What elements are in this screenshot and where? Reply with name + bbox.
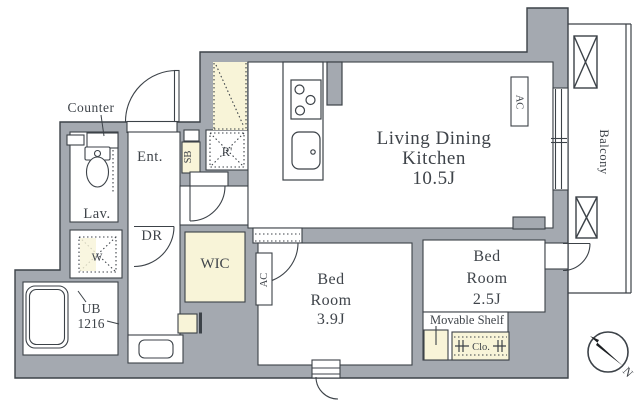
bottom-window-arc (316, 377, 338, 399)
bedroom39-label-1: Bed (317, 271, 344, 288)
kitchen-wall-stub (327, 62, 342, 105)
bedroom25-label-3: 2.5J (473, 291, 501, 308)
entry-door-arc (126, 71, 177, 122)
shoe-box-label: SB (183, 151, 194, 164)
wall-step-block (513, 217, 545, 229)
sink-icon (292, 132, 320, 169)
ldk-label-3: 10.5J (412, 168, 455, 189)
ldk-label-2: Kitchen (402, 148, 466, 169)
floor-plan: Counter Ent. SB R' Lav. W UB 1216 DR WIC… (0, 0, 640, 408)
washer-label: W (92, 252, 103, 264)
lavatory-label: Lav. (83, 206, 110, 222)
kitchen-door-opening (190, 172, 228, 186)
entry-door-leaf (175, 71, 180, 122)
ldk-label-1: Living Dining (377, 128, 492, 149)
counter-label: Counter (68, 100, 115, 115)
bedroom39-label-2: Room (310, 292, 351, 309)
compass-icon (588, 332, 628, 372)
wall-shelf-box (184, 130, 199, 141)
closet-label: Clo. (472, 342, 490, 353)
floor-plan-canvas: Counter Ent. SB R' Lav. W UB 1216 DR WIC… (0, 0, 640, 408)
toilet-bowl-icon (87, 157, 109, 187)
toilet-button-icon (95, 151, 101, 157)
dr-step-box (178, 314, 197, 333)
dr-label: DR (141, 228, 162, 244)
bedroom39-label-3: 3.9J (317, 311, 345, 328)
tall-storage (213, 62, 247, 130)
balcony-door-opening (545, 243, 568, 269)
wic-label: WIC (200, 256, 229, 272)
unit-bath-label-1: UB (82, 301, 101, 316)
bedroom25-label-1: Bed (473, 248, 500, 265)
burner-icon (296, 106, 305, 115)
bedroom25-label-2: Room (466, 270, 507, 287)
entrance-label: Ent. (137, 149, 163, 165)
faucet-icon (311, 150, 315, 154)
refrigerator-label: R' (222, 145, 233, 159)
entry-door-opening (127, 122, 177, 133)
pillar-icon (574, 36, 597, 88)
ac-bedroom-label: AC (259, 273, 270, 288)
burner-icon (295, 85, 304, 94)
bottom-window-opening (312, 360, 340, 378)
unit-bath-label-2: 1216 (78, 316, 105, 331)
counter-shelf (87, 133, 118, 148)
balcony-label: Balcony (597, 129, 611, 174)
pillar-icon (576, 197, 597, 238)
bathtub-inner-icon (30, 290, 65, 345)
ac-living-label: AC (514, 95, 525, 110)
movable-shelf-label: Movable Shelf (430, 313, 505, 327)
vanity-basin-icon (139, 340, 173, 358)
paper-holder (67, 135, 84, 145)
burner-icon (306, 96, 315, 105)
door-track-bar (199, 313, 202, 334)
